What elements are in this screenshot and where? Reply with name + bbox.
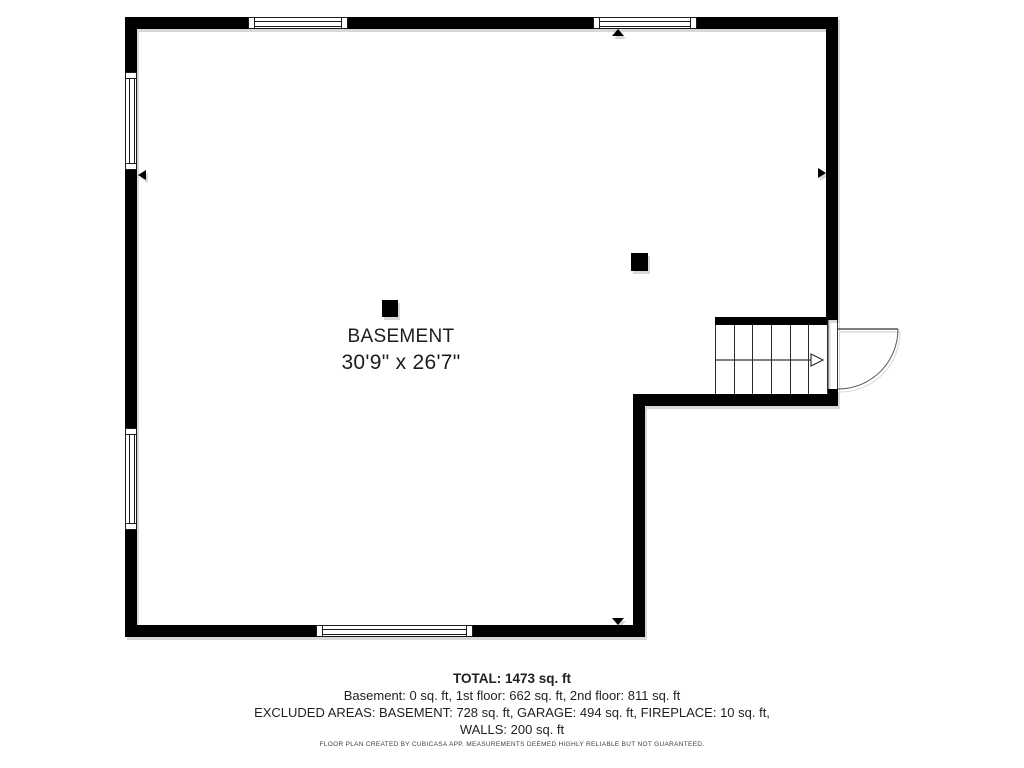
summary-floor-breakdown: Basement: 0 sq. ft, 1st floor: 662 sq. f… xyxy=(0,687,1024,704)
stair-tread xyxy=(716,325,735,394)
wall-lower-right xyxy=(633,394,645,637)
window-frame-end xyxy=(126,523,136,524)
window-left-upper xyxy=(125,72,137,170)
window-pane xyxy=(255,21,341,27)
summary-total: TOTAL: 1473 sq. ft xyxy=(0,670,1024,687)
window-frame-end xyxy=(126,434,136,435)
support-post-1 xyxy=(382,300,398,317)
wall-right-upper xyxy=(826,17,838,320)
window-top-right xyxy=(593,17,697,29)
door-swing-arc xyxy=(838,329,898,389)
window-frame-end xyxy=(322,626,323,636)
stair-tread xyxy=(809,325,827,394)
window-pane xyxy=(600,21,690,27)
floor-plan xyxy=(0,0,1024,768)
window-pane xyxy=(129,79,135,163)
room-dimensions: 30'9" x 26'7" xyxy=(281,349,521,376)
window-frame-end xyxy=(126,78,136,79)
support-post-2 xyxy=(631,253,648,271)
floor-plan-page: BASEMENT 30'9" x 26'7" TOTAL: 1473 sq. f… xyxy=(0,0,1024,768)
wall-top xyxy=(125,17,838,29)
stair-tread xyxy=(735,325,754,394)
direction-marker-right xyxy=(818,168,826,178)
window-frame-end xyxy=(599,18,600,28)
direction-marker-top xyxy=(612,29,624,36)
disclaimer: FLOOR PLAN CREATED BY CUBICASA APP. MEAS… xyxy=(0,741,1024,748)
window-frame-end xyxy=(690,18,691,28)
room-label-block: BASEMENT 30'9" x 26'7" xyxy=(281,325,521,376)
area-summary: TOTAL: 1473 sq. ft Basement: 0 sq. ft, 1… xyxy=(0,670,1024,738)
plan-symbols xyxy=(0,0,1024,768)
room-name: BASEMENT xyxy=(281,325,521,349)
stair-tread xyxy=(791,325,810,394)
summary-excluded-areas-line2: WALLS: 200 sq. ft xyxy=(0,721,1024,738)
window-frame-end xyxy=(254,18,255,28)
wall-step xyxy=(633,394,838,406)
window-bottom xyxy=(316,625,473,637)
window-frame-end xyxy=(466,626,467,636)
window-frame-end xyxy=(126,163,136,164)
stairs-landing-wall xyxy=(715,317,828,325)
stair-tread xyxy=(772,325,791,394)
window-left-lower xyxy=(125,428,137,530)
stair-tread xyxy=(753,325,772,394)
window-pane xyxy=(129,435,135,523)
direction-marker-left xyxy=(138,170,146,180)
summary-excluded-areas-line1: EXCLUDED AREAS: BASEMENT: 728 sq. ft, GA… xyxy=(0,704,1024,721)
window-top-left xyxy=(248,17,348,29)
window-pane xyxy=(323,629,466,635)
staircase xyxy=(715,325,828,394)
window-frame-end xyxy=(341,18,342,28)
direction-marker-bottom xyxy=(612,618,624,625)
